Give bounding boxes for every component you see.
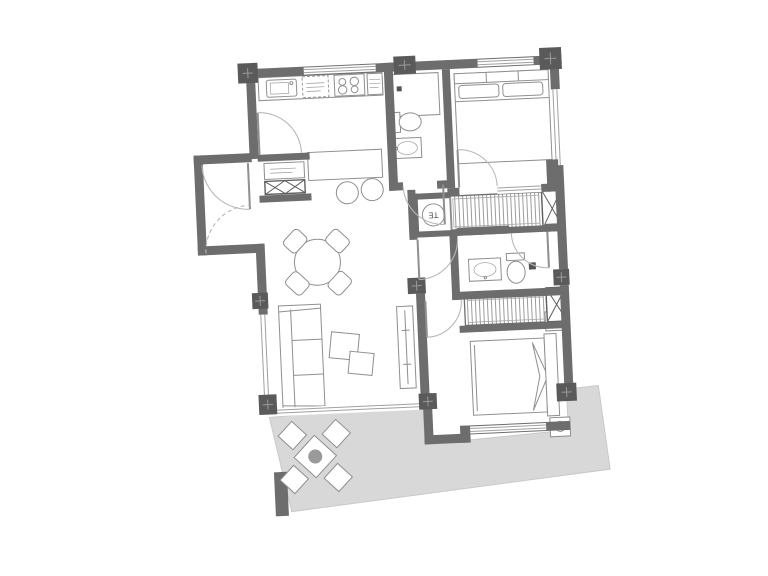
pillar [258,394,277,415]
pillar [553,269,570,286]
wall-bedroom1-south [541,183,563,192]
dining-set [281,225,354,299]
wall-bathroom1-south [389,182,403,191]
water-heater-label: TE [428,210,439,219]
pillar [252,292,269,309]
coffee-tables [328,330,375,377]
double-bed [454,70,552,164]
bar-stool [336,181,359,204]
entry-door [202,163,250,211]
living-dining [275,223,417,412]
entry-nook-west [194,155,208,255]
bedroom2-door [425,300,463,338]
wall-bathroom2-north [545,223,565,232]
pillar [556,383,577,402]
pillar [419,393,438,410]
wall-bathroom1-south [437,180,455,189]
entry-nook-south [198,244,264,256]
washbasin-icon [393,137,422,158]
wall-west-living [256,244,267,299]
utility-gallery-1 [450,192,543,230]
toilet-icon [392,111,422,132]
kitchen-island [307,149,383,205]
washbasin-icon [468,258,501,281]
sink-icon [266,79,297,97]
window-west-living [259,315,272,395]
shower-drain-icon [397,86,402,91]
floor-plan-drawing: TE [0,0,768,576]
refrigerator-icon [367,73,383,95]
bathroom-2 [468,252,536,285]
wall-west-upper [246,78,259,159]
pillar [393,56,416,75]
pillar [407,277,426,294]
window-east-bedroom1 [551,89,563,165]
pillow [503,82,544,97]
appliance-box [264,162,305,180]
shower-icon [390,73,440,117]
pillar [539,47,562,70]
pillow [459,84,500,99]
kitchen [254,72,388,208]
bedroom-1 [454,70,552,164]
drying-rack-hatched [450,192,543,230]
coffee-table [348,351,374,375]
pillar [237,63,258,84]
floor-plan-canvas: TE [0,0,768,576]
dishwasher-icon [302,76,329,98]
wall-bathroom2-west [449,234,460,300]
bathroom-1 [390,73,442,159]
sofa [278,304,325,412]
service-shaft-icon [265,180,306,195]
wall-east [560,285,574,385]
bar-stool [361,178,384,201]
wall-bathroom1-east [442,69,455,181]
water-heater: TE [416,194,452,236]
cooktop-icon [334,74,365,96]
kitchen-service-enclosure [258,152,312,202]
wall-bedroom2-west [416,293,430,397]
double-bed [470,333,560,419]
media-console [397,306,417,389]
kitchen-door [258,111,302,155]
